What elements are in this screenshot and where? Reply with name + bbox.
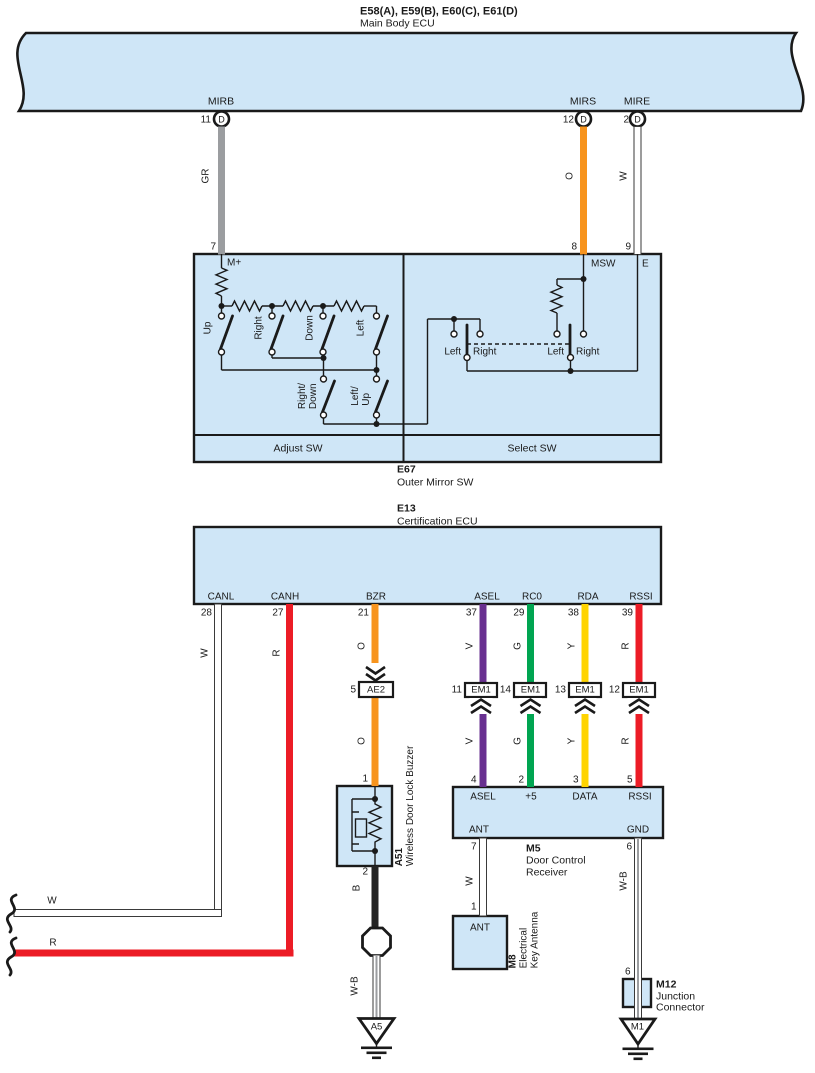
e67-id: E67 xyxy=(397,465,416,476)
wire-code-rssi-upper: R xyxy=(621,642,632,649)
ground-id-m1: M1 xyxy=(631,1022,644,1033)
m5-pin-rssi: RSSI xyxy=(628,792,651,803)
main-ecu-name: Main Body ECU xyxy=(360,19,435,30)
e13-name: Certification ECU xyxy=(397,516,478,527)
e67-pin-9: 9 xyxy=(625,242,631,253)
connector-letter-mire: D xyxy=(634,114,641,125)
noise-filter-octagon xyxy=(363,928,391,956)
pin-label-mire: MIRE xyxy=(624,97,650,108)
e67-pin-7: 7 xyxy=(210,242,216,253)
switch-label-up: Up xyxy=(203,322,214,335)
m5-pin-asel: ASEL xyxy=(470,792,496,803)
wire-o-top xyxy=(580,127,587,255)
exit-wire-code-r: R xyxy=(49,938,56,949)
wire-w-top xyxy=(634,127,641,255)
wire-code-asel-upper: V xyxy=(465,643,476,650)
switch-label-right-down: Right/Down xyxy=(297,383,319,409)
m8-ant-label: ANT xyxy=(470,922,490,933)
e67-section-adjust: Adjust SW xyxy=(273,443,322,454)
m5-num-6: 6 xyxy=(626,841,632,852)
e13-pin-canh: CANH xyxy=(271,592,299,603)
e13-num-39: 39 xyxy=(622,607,633,618)
m5-num-7: 7 xyxy=(471,841,477,852)
em1-label-14: EM1 xyxy=(521,685,541,696)
pin-num-mirb: 11 xyxy=(201,114,211,125)
em1-num-12: 12 xyxy=(609,685,620,696)
m5-pin-plus5: +5 xyxy=(525,792,536,803)
em1-label-12: EM1 xyxy=(629,685,649,696)
e13-num-27: 27 xyxy=(272,607,283,618)
pin-label-mirs: MIRS xyxy=(570,97,596,108)
wire-code-o: O xyxy=(565,172,576,180)
e67-terminal-mplus: M+ xyxy=(227,258,241,269)
m8-pin-1: 1 xyxy=(471,902,477,913)
wire-code-gr: GR xyxy=(201,169,212,184)
wire-code-canh: R xyxy=(271,649,282,656)
wire-code-rc0-upper: G xyxy=(512,642,523,650)
m5-num-4: 4 xyxy=(471,775,477,786)
wire-b xyxy=(372,866,379,929)
e13-pin-canl: CANL xyxy=(208,592,235,603)
wire-code-rssi-lower: R xyxy=(621,737,632,744)
a51-pin-2: 2 xyxy=(362,866,368,877)
select-sw2-left: Left xyxy=(547,347,564,358)
pin-num-mire: 2 xyxy=(623,114,629,125)
m5-name-2: Receiver xyxy=(526,867,567,878)
switch-label-left: Left xyxy=(356,320,367,337)
wire-canl xyxy=(215,604,222,910)
e13-num-29: 29 xyxy=(513,607,524,618)
a51-box xyxy=(337,786,392,866)
e13-pin-rssi: RSSI xyxy=(629,592,652,603)
select-sw1-left: Left xyxy=(444,347,461,358)
wire-code-bzr-upper: O xyxy=(357,642,368,650)
em1-num-11: 11 xyxy=(452,685,462,696)
wire-canh-h xyxy=(14,950,294,957)
em1-num-13: 13 xyxy=(555,685,566,696)
wire-canh xyxy=(286,604,293,953)
em1-num-14: 14 xyxy=(500,685,511,696)
wire-code-gnd-wb: W-B xyxy=(618,871,629,890)
e67-terminal-msw: MSW xyxy=(591,259,615,270)
switch-label-left-up: Left/Up xyxy=(350,386,372,405)
wire-code-canl: W xyxy=(200,648,211,657)
e67-pin-8: 8 xyxy=(571,242,577,253)
pin-label-mirb: MIRB xyxy=(208,97,234,108)
connector-letter-mirs: D xyxy=(580,114,587,125)
main-body-ecu-band xyxy=(17,33,803,111)
m5-pin-gnd: GND xyxy=(627,824,649,835)
switch-label-right: Right xyxy=(254,316,265,339)
e67-name: Outer Mirror SW xyxy=(397,477,473,488)
wire-code-rc0-lower: G xyxy=(512,737,523,745)
e13-num-21: 21 xyxy=(358,607,369,618)
wire-canl-h xyxy=(14,910,222,917)
m5-id: M5 xyxy=(526,844,541,855)
wire-code-ant-w: W xyxy=(465,876,476,885)
wire-code-b: B xyxy=(352,885,363,892)
a51-title: A51Wireless Door Lock Buzzer xyxy=(394,746,416,867)
wire-code-wb-buzzer: W-B xyxy=(350,976,361,995)
e13-id: E13 xyxy=(397,504,416,515)
wire-code-rda-upper: Y xyxy=(567,643,578,650)
select-sw1-right: Right xyxy=(473,347,496,358)
m5-pin-data: DATA xyxy=(572,792,597,803)
m5-num-3: 3 xyxy=(573,775,579,786)
e67-section-select: Select SW xyxy=(507,443,556,454)
switch-label-down: Down xyxy=(305,315,316,341)
main-ecu-codes: E58(A), E59(B), E60(C), E61(D) xyxy=(360,7,518,18)
e13-pin-rda: RDA xyxy=(577,592,598,603)
wiring-diagram-page: E58(A), E59(B), E60(C), E61(D) Main Body… xyxy=(0,0,815,1073)
em1-label-11: EM1 xyxy=(471,685,491,696)
m5-num-5: 5 xyxy=(627,775,633,786)
pin-num-mirs: 12 xyxy=(563,114,574,125)
ae2-label: AE2 xyxy=(367,685,385,696)
wire-code-w: W xyxy=(619,171,630,180)
wire-gr xyxy=(218,127,225,255)
e13-pin-asel: ASEL xyxy=(474,592,500,603)
em1-label-13: EM1 xyxy=(575,685,595,696)
e13-pin-bzr: BZR xyxy=(366,592,386,603)
exit-wire-code-w: W xyxy=(47,896,56,907)
m12-name-1: Junction xyxy=(656,991,695,1002)
m12-id: M12 xyxy=(656,979,676,990)
e13-pin-rc0: RC0 xyxy=(522,592,542,603)
wire-code-asel-lower: V xyxy=(465,738,476,745)
m8-title: M8ElectricalKey Antenna xyxy=(508,911,541,968)
select-sw2-right: Right xyxy=(576,347,599,358)
e13-num-28: 28 xyxy=(201,607,212,618)
e67-terminal-e: E xyxy=(642,259,649,270)
wire-ant xyxy=(480,838,487,916)
a51-pin-1: 1 xyxy=(362,774,368,785)
m12-name-2: Connector xyxy=(656,1003,704,1014)
schematic-lines xyxy=(0,0,815,1073)
m5-num-2: 2 xyxy=(518,775,524,786)
connector-letter-mirb: D xyxy=(218,114,225,125)
m5-pin-ant: ANT xyxy=(469,824,489,835)
e13-num-37: 37 xyxy=(466,607,477,618)
wire-code-bzr-lower: O xyxy=(357,737,368,745)
ae2-num: 5 xyxy=(350,685,356,696)
m12-pin-6: 6 xyxy=(625,967,631,978)
m5-name-1: Door Control xyxy=(526,856,586,867)
ground-id-a5: A5 xyxy=(371,1021,383,1032)
e13-num-38: 38 xyxy=(568,607,579,618)
wire-code-rda-lower: Y xyxy=(567,738,578,745)
